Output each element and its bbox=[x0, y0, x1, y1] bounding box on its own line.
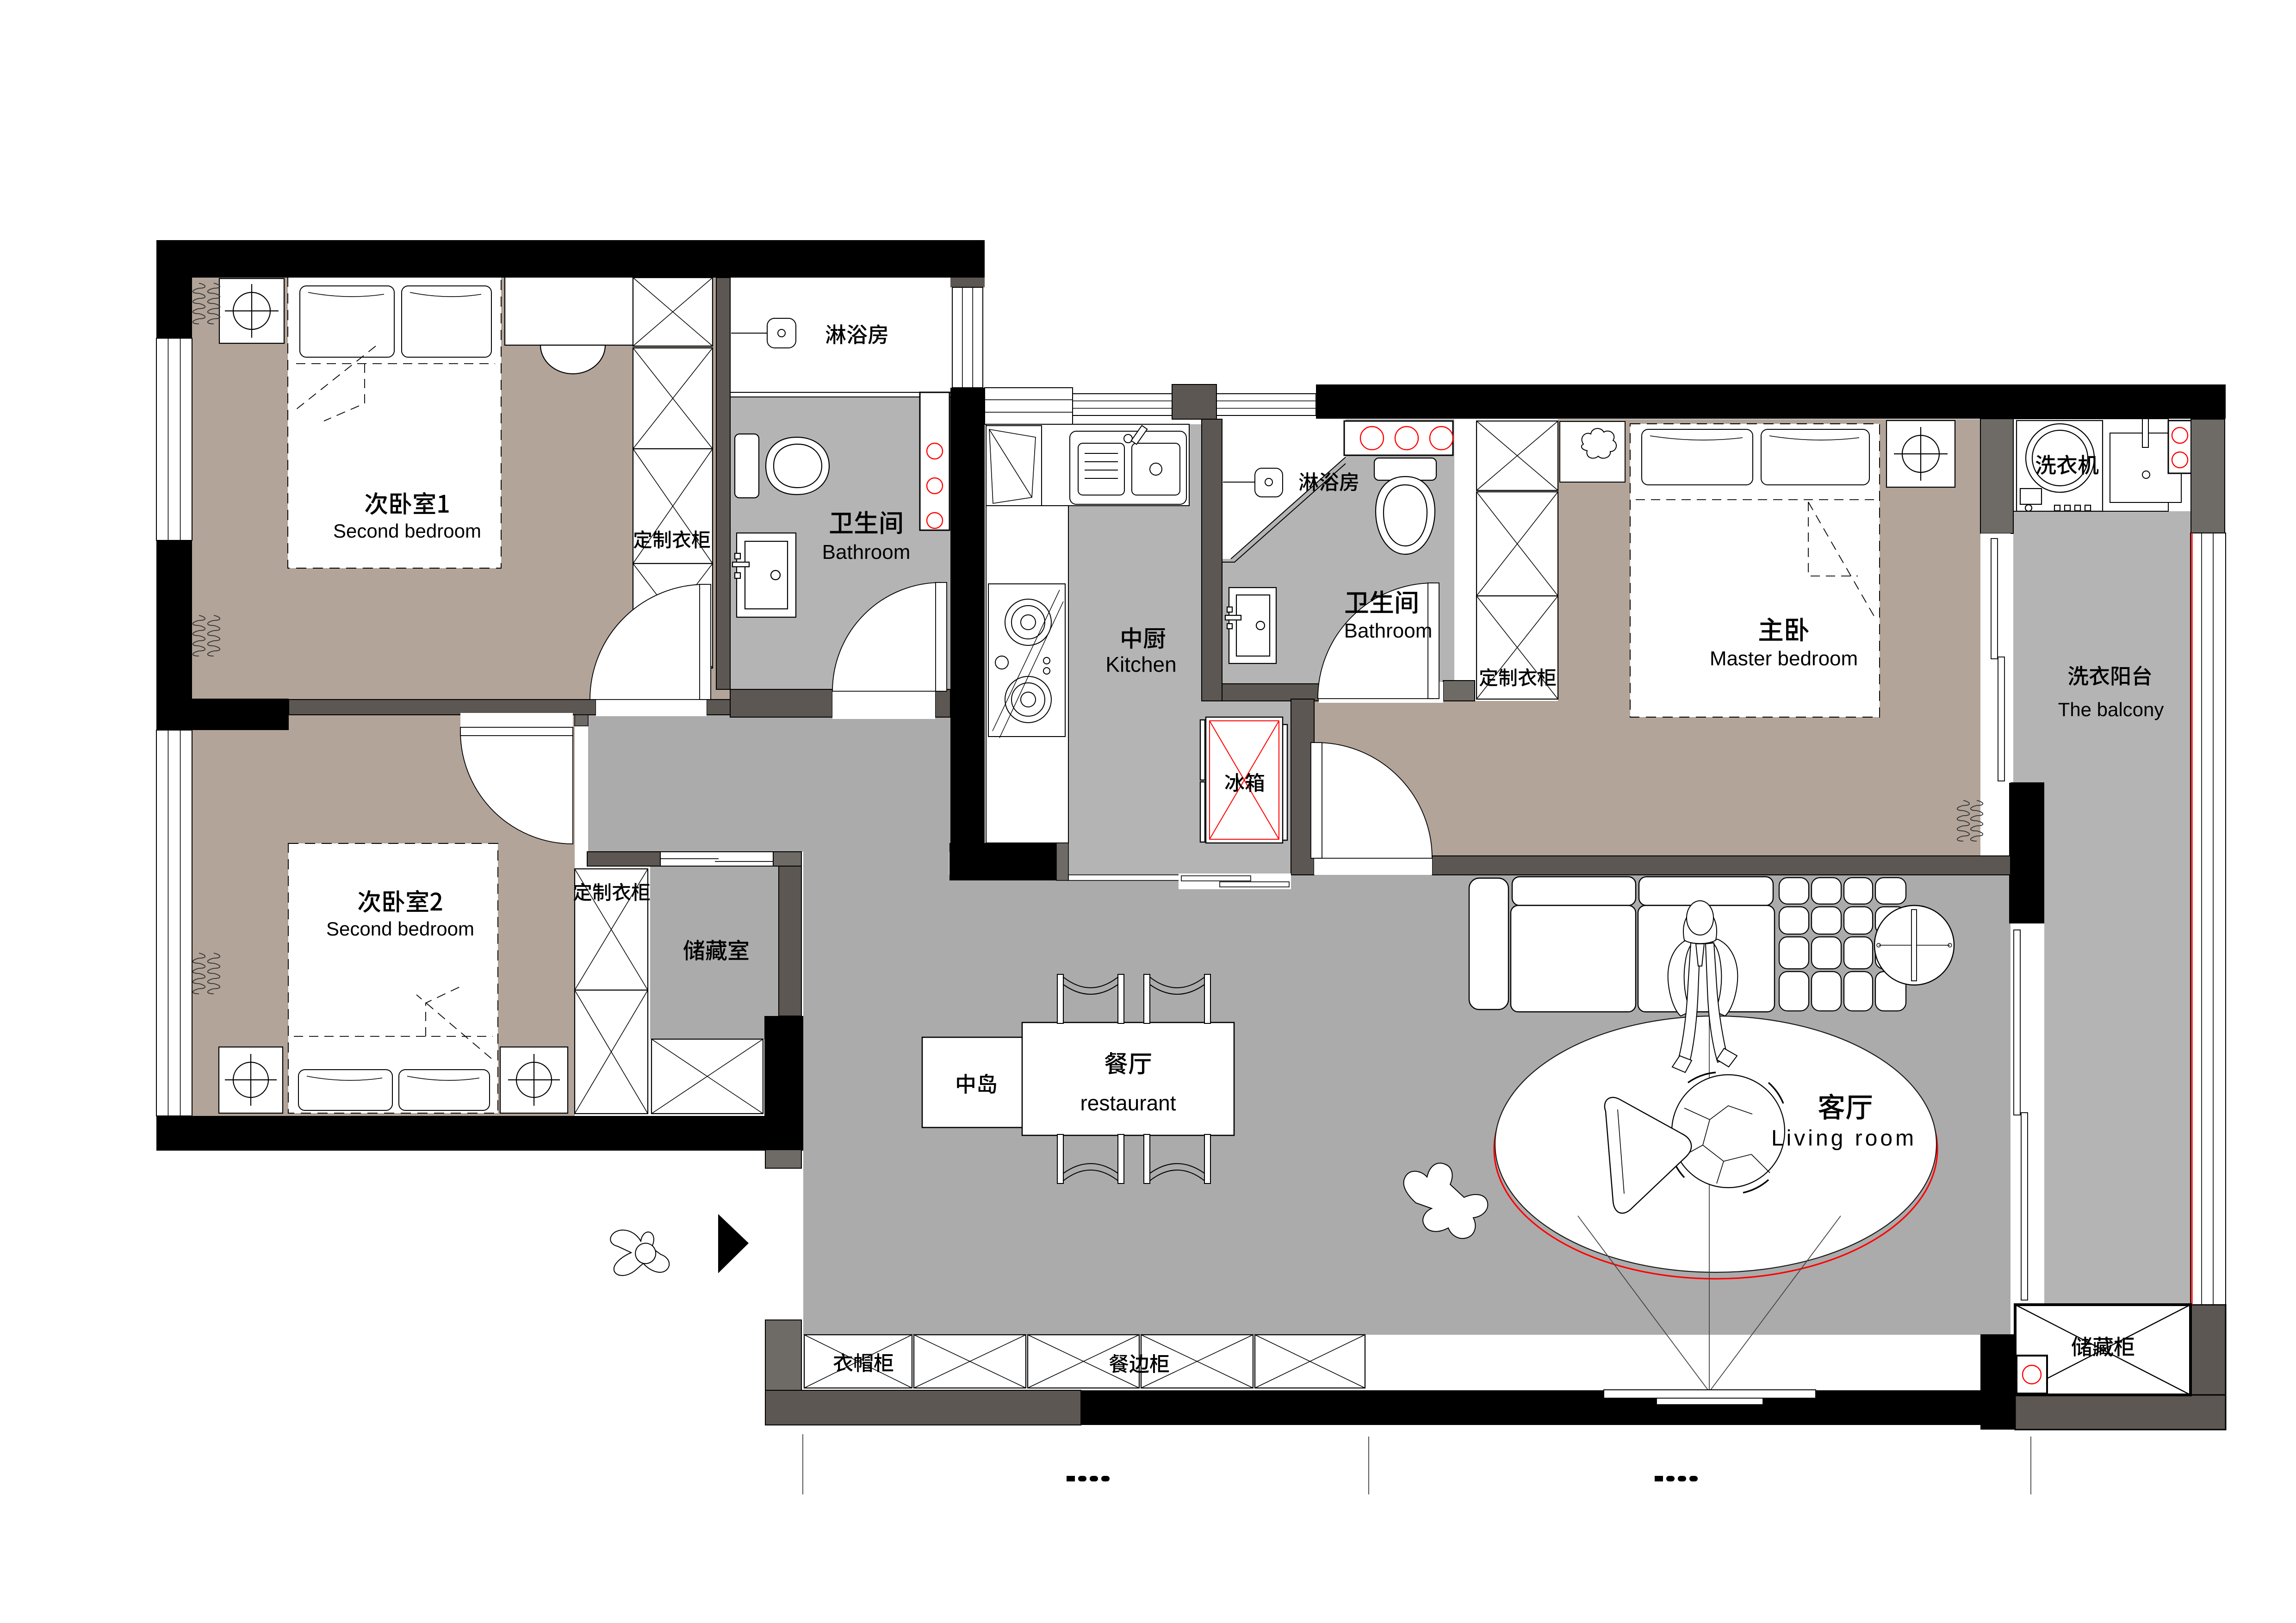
svg-text:Bathroom: Bathroom bbox=[1344, 619, 1433, 642]
svg-text:Master bedroom: Master bedroom bbox=[1710, 647, 1858, 670]
svg-text:The balcony: The balcony bbox=[2058, 699, 2164, 720]
svg-text:Second bedroom: Second bedroom bbox=[333, 520, 481, 542]
svg-text:Living room: Living room bbox=[1771, 1126, 1917, 1151]
svg-text:Kitchen: Kitchen bbox=[1105, 652, 1176, 676]
svg-text:Bathroom: Bathroom bbox=[822, 541, 911, 564]
svg-text:Second bedroom: Second bedroom bbox=[326, 918, 474, 940]
svg-text:restaurant: restaurant bbox=[1080, 1091, 1176, 1115]
